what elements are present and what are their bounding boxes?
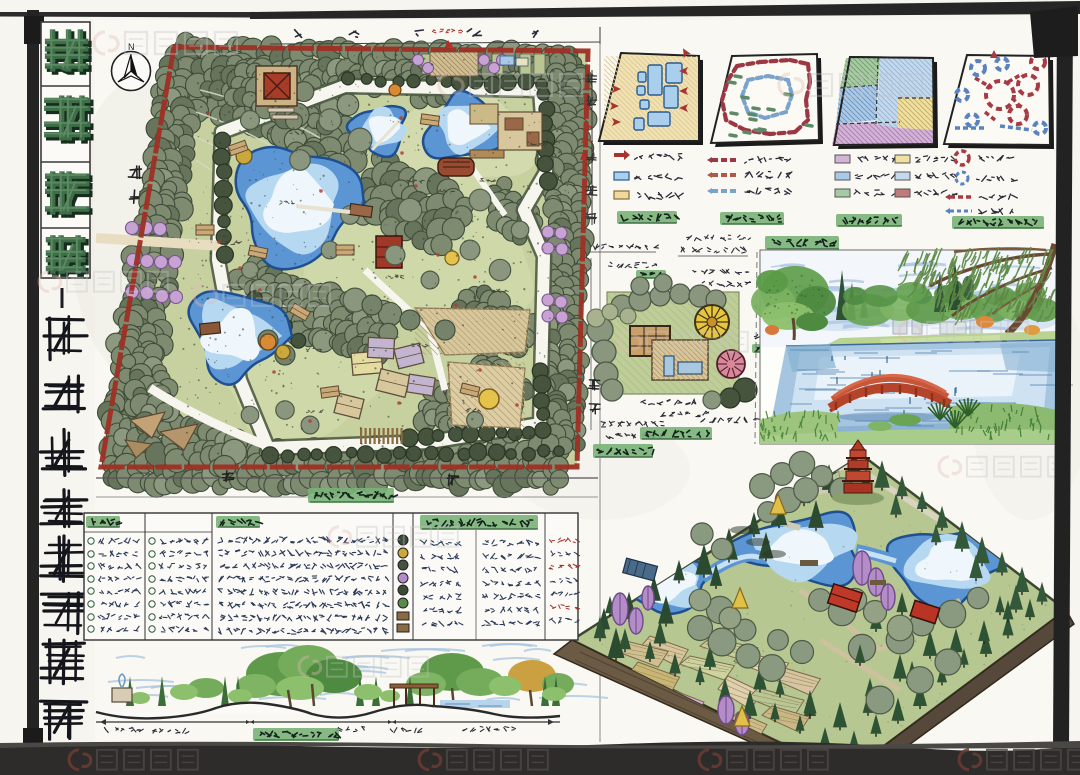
svg-text:N: N	[128, 42, 135, 52]
